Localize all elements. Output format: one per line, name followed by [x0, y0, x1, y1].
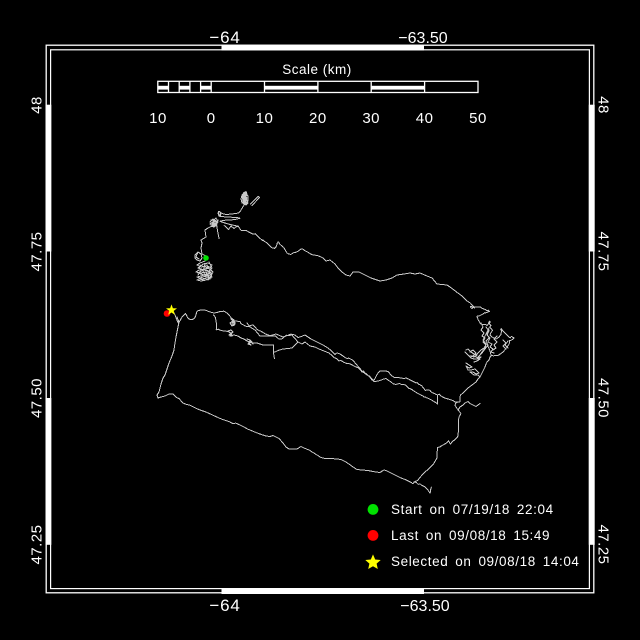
svg-text:48: 48: [29, 96, 46, 114]
svg-text:Scale (km): Scale (km): [282, 62, 352, 77]
svg-text:10: 10: [256, 110, 274, 127]
svg-text:40: 40: [416, 110, 434, 127]
svg-text:30: 30: [362, 110, 380, 127]
svg-text:Selected on 09/08/18 14:04: Selected on 09/08/18 14:04: [391, 554, 580, 569]
svg-text:−64: −64: [209, 596, 240, 615]
svg-text:48: 48: [595, 96, 612, 114]
svg-text:47.25: 47.25: [29, 524, 46, 564]
svg-text:50: 50: [469, 110, 487, 127]
svg-text:47.25: 47.25: [595, 524, 612, 564]
svg-text:47.50: 47.50: [595, 378, 612, 418]
svg-text:Last on 09/08/18 15:49: Last on 09/08/18 15:49: [391, 528, 550, 543]
svg-text:−63.50: −63.50: [398, 30, 447, 47]
svg-text:20: 20: [309, 110, 327, 127]
svg-text:−64: −64: [209, 28, 240, 47]
svg-text:47.75: 47.75: [29, 231, 46, 271]
svg-text:Start on 07/19/18 22:04: Start on 07/19/18 22:04: [391, 502, 554, 517]
svg-text:47.75: 47.75: [595, 231, 612, 271]
svg-text:0: 0: [207, 110, 216, 127]
svg-text:−63.50: −63.50: [400, 598, 449, 615]
svg-text:47.50: 47.50: [29, 378, 46, 418]
svg-text:10: 10: [149, 110, 167, 127]
